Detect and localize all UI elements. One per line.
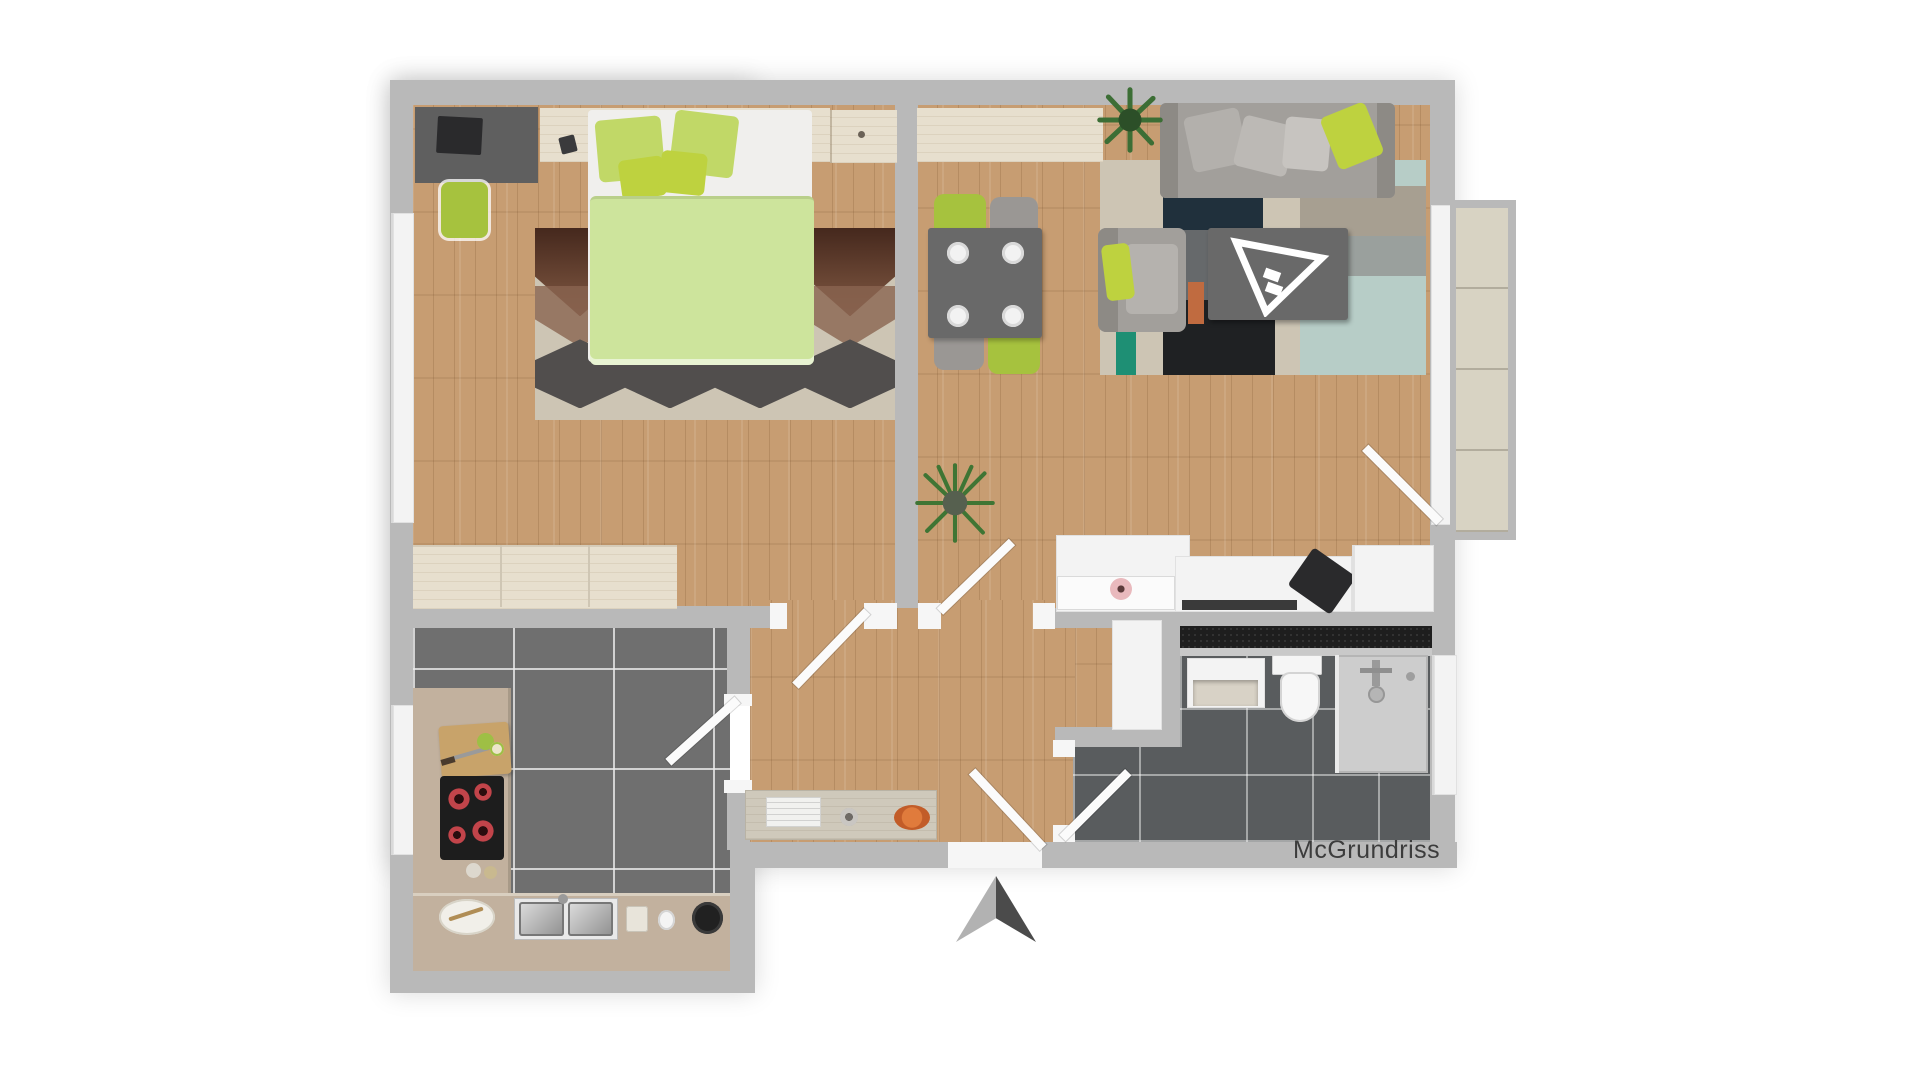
living-side-cabinet [1352,545,1434,612]
cooktop [440,776,504,860]
living-desk-pad [1182,600,1297,610]
cooktop-burner-3 [448,826,466,844]
dining-plate-1 [947,242,969,264]
kitchen-window [391,705,414,855]
shower-faucet-bar [1372,660,1380,686]
bathroom-floor-nook [1073,747,1183,842]
shower-head [1368,686,1385,703]
dining-chair-bottom-left [934,334,984,370]
living-lowboard [917,108,1103,162]
bedroom-door-threshold-left [770,603,787,629]
console-tray [766,797,821,827]
bedroom-window [391,213,414,523]
wall-kitchen-hall-upper [727,628,750,700]
kitchen-jar-1 [466,863,481,878]
living-plant [1094,84,1166,156]
dresser-flower [1110,578,1132,600]
bedroom-door-threshold-right [864,603,897,629]
shower-drain [1406,672,1415,681]
shower-faucet-handles [1360,668,1392,673]
bathroom-vanity-counter [1180,626,1432,648]
sink-basin-left [519,902,564,936]
sink-basin-right [568,902,613,936]
bedroom-wardrobe [413,545,677,609]
dining-plate-3 [947,305,969,327]
kitchen-canister [626,906,648,932]
cooktop-burner-1 [448,788,470,810]
dining-plate-2 [1002,242,1024,264]
coffee-table-triangle-logo [1222,232,1332,317]
north-arrow [956,876,1036,942]
wall-top [390,80,1455,105]
apple-half [490,742,504,756]
living-rug-orange [1188,282,1204,324]
wall-bottom-kitchen [390,968,755,993]
kitchen-corner-bowl [439,899,495,935]
cooktop-burner-4 [472,820,494,842]
kitchen-jar-2 [484,866,497,879]
bathroom-door-threshold-top [1053,740,1075,757]
living-door-threshold-right [1033,603,1055,629]
shower-glass-edge [1335,655,1339,773]
floorplan-canvas: McGrundriss [0,0,1920,1080]
watermark-text: McGrundriss [1293,836,1440,865]
console-vase [840,808,858,826]
sink-faucet [558,894,568,904]
console-orange-bowl [894,805,930,830]
toilet-bowl [1280,672,1320,722]
dining-chair-bottom-right [988,334,1040,374]
wardrobe-divider-1 [500,545,502,607]
cooktop-burner-2 [474,783,492,801]
bedroom-laptop [436,116,483,155]
hall-tall-cabinet [1112,620,1162,730]
nightstand-handle [858,131,865,138]
bed-duvet [590,196,814,365]
bathroom-shelf-recess [1193,680,1258,706]
armchair-seat-cushion [1126,244,1178,314]
wardrobe-divider-2 [588,545,590,607]
bed-cushion-right [658,150,708,197]
dining-plate-4 [1002,305,1024,327]
wall-bedroom-bottom [413,606,770,628]
bedroom-desk-chair [441,182,488,238]
dining-table [928,228,1042,338]
kitchen-soap [658,910,675,930]
living-rug-teal [1116,332,1136,375]
kitchen-kettle [692,902,723,934]
balcony-tiles [1456,208,1508,532]
entrance-threshold [948,842,1042,868]
hallway-plant [914,462,996,544]
wall-hall-bottom [730,842,948,868]
bathroom-right-door [1432,655,1457,795]
